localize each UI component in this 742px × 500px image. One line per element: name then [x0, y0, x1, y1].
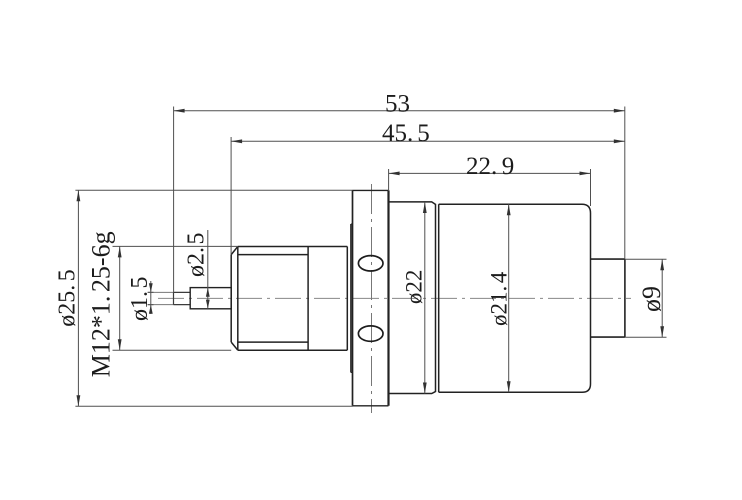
svg-text:53: 53 [385, 91, 410, 118]
svg-text:M12*1.25-6g: M12*1.25-6g [87, 231, 116, 377]
svg-text:ø22: ø22 [402, 270, 427, 305]
svg-text:ø9: ø9 [637, 286, 666, 312]
svg-text:ø25.5: ø25.5 [55, 269, 81, 327]
svg-text:45.5: 45.5 [382, 120, 430, 147]
svg-text:ø1.5: ø1.5 [127, 276, 153, 321]
svg-text:ø2.5: ø2.5 [184, 233, 210, 277]
svg-text:ø21.4: ø21.4 [487, 271, 512, 326]
svg-text:22.9: 22.9 [466, 153, 514, 180]
